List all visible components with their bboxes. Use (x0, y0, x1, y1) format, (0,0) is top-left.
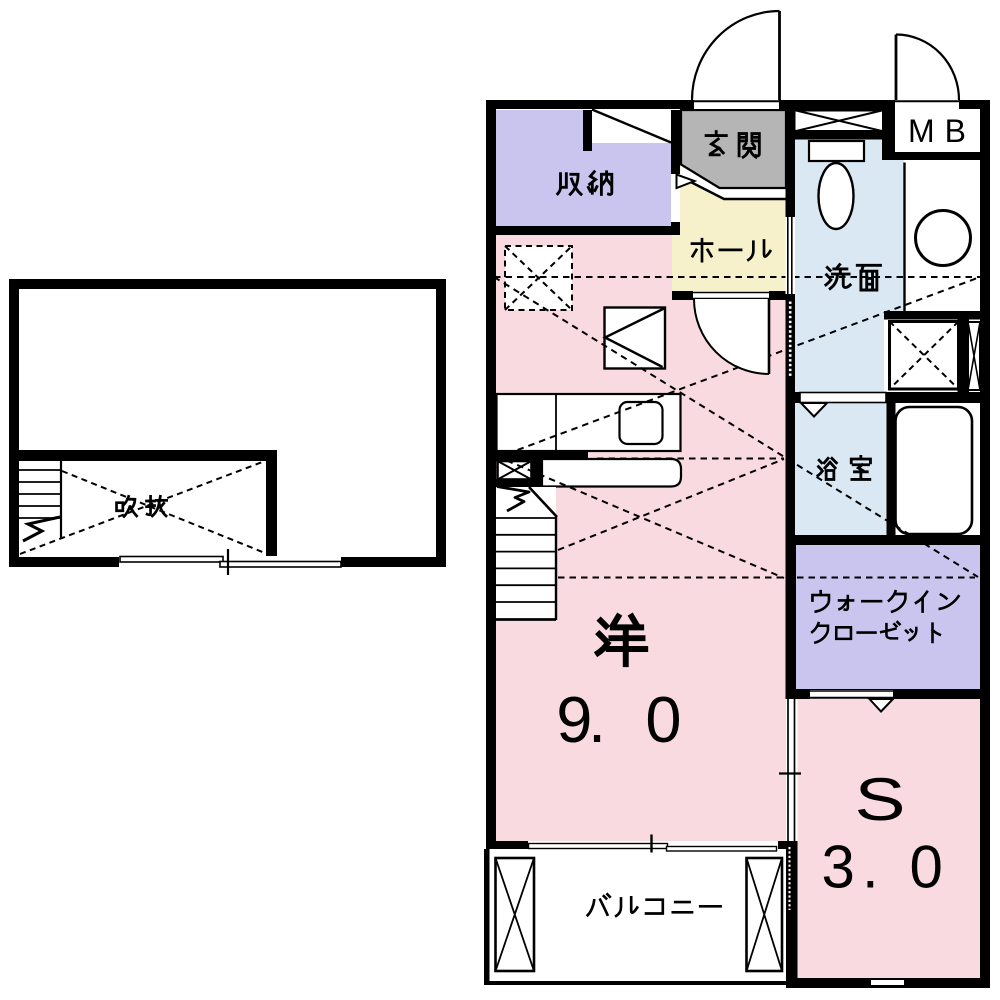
svg-text:.: . (862, 834, 879, 901)
svg-text:0: 0 (910, 834, 943, 901)
svg-text:MB: MB (908, 113, 976, 149)
svg-text:3: 3 (822, 834, 855, 901)
svg-text:S: S (855, 765, 906, 833)
svg-text:0: 0 (645, 683, 681, 756)
svg-text:.: . (588, 683, 606, 756)
